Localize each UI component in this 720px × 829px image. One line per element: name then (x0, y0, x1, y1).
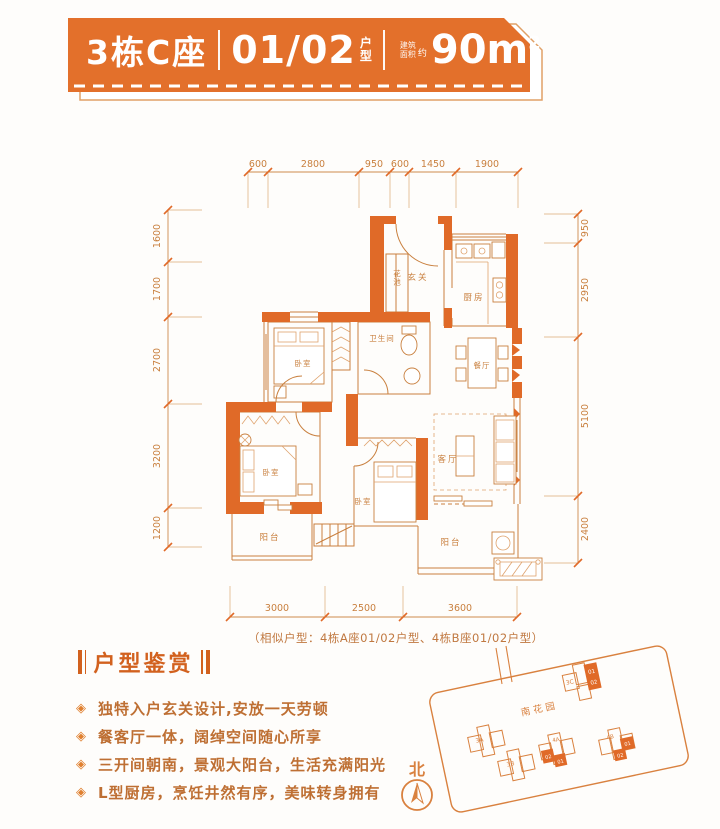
dim-label: 2700 (152, 348, 163, 372)
site-boundary (428, 644, 690, 814)
area-prefix: 建筑 面积 约 (396, 41, 427, 59)
site-plan: 南花园 01 02 3C 3A 3B 02 01 4A (390, 642, 700, 827)
building-4b: 01 02 4B (597, 725, 637, 763)
dim-label: 1700 (152, 277, 163, 301)
room-label-living: 客厅 (437, 454, 458, 465)
feature-item: ◈ 三开间朝南，景观大阳台，生活充满阳光 (76, 750, 416, 778)
area-label-line1: 建筑 (400, 41, 416, 50)
dim-label: 2950 (580, 278, 591, 302)
room-label-dining: 餐厅 (474, 361, 491, 370)
area-value: 90m2 (431, 27, 541, 73)
dim-label: 3600 (448, 603, 472, 614)
heading-bar (85, 650, 87, 674)
building-4b-label: 4B (606, 734, 615, 741)
building-3c-label: 3C (565, 678, 574, 687)
dim-label: 2800 (301, 159, 325, 170)
area-prefix-stack: 建筑 面积 (400, 41, 416, 59)
compass-needle-filled (411, 783, 417, 803)
diamond-bullet-icon: ◈ (76, 701, 98, 716)
room-label-entry: 玄关 (407, 272, 428, 283)
dim-label: 3200 (152, 444, 163, 468)
unit-label-line2: 型 (360, 50, 372, 63)
room-label-bathroom: 卫生间 (369, 333, 395, 343)
garden-label: 南花园 (520, 699, 559, 719)
feature-text: 三开间朝南，景观大阳台，生活充满阳光 (98, 754, 386, 775)
dim-label: 1600 (152, 224, 163, 248)
building-4a: 02 01 4A (537, 730, 577, 769)
banner-title: 3栋C座 01/02 户 型 建筑 面积 约 90m2 (64, 12, 556, 88)
area-superscript: 2 (528, 33, 541, 54)
dimension-top: 600 2800 950 600 1450 1900 (244, 159, 522, 208)
feature-item: ◈ 餐客厅一体，阔绰空间随心所享 (76, 722, 416, 750)
dimension-right: 950 2950 5100 2400 (544, 210, 591, 567)
dim-label: 5100 (580, 404, 591, 428)
area-number: 90m (431, 27, 528, 73)
features-heading: 户型鉴赏 (76, 646, 416, 678)
unit-label: 户 型 (360, 37, 372, 63)
room-label-kitchen: 厨房 (463, 292, 484, 303)
north-label: 北 (409, 760, 425, 779)
north-compass: 北 (402, 760, 432, 810)
building-3a-label: 3A (475, 736, 485, 745)
dim-label: 2500 (352, 603, 376, 614)
divider-bar (218, 30, 220, 70)
area-label-line2: 面积 (400, 50, 416, 59)
room-label-bedroom-small: 卧室 (355, 496, 372, 506)
dimension-bottom: 3000 2500 3600 (226, 586, 521, 621)
feature-item: ◈ L型厨房，烹饪井然有序，美味转身拥有 (76, 778, 416, 806)
dim-label: 2400 (580, 517, 591, 541)
room-label-bedroom-left: 卧室 (263, 467, 280, 477)
features-title: 户型鉴赏 (94, 646, 194, 678)
building-3b: 3B (496, 746, 536, 783)
area-approx: 约 (418, 49, 427, 59)
dim-label: 950 (580, 219, 591, 237)
dim-label: 600 (249, 159, 267, 170)
building-3c: 01 02 3C (561, 660, 604, 703)
unit-number: 01/02 (231, 28, 356, 72)
diamond-bullet-icon: ◈ (76, 729, 98, 744)
room-label-bedroom-mid: 卧室 (295, 358, 312, 368)
feature-text: L型厨房，烹饪井然有序，美味转身拥有 (98, 782, 381, 803)
diamond-bullet-icon: ◈ (76, 785, 98, 800)
dim-label: 1900 (475, 159, 499, 170)
features-section: 户型鉴赏 ◈ 独特入户玄关设计,安放一天劳顿 ◈ 餐客厅一体，阔绰空间随心所享 … (76, 646, 416, 806)
heading-bar (201, 650, 203, 674)
feature-item: ◈ 独特入户玄关设计,安放一天劳顿 (76, 694, 416, 722)
room-label-balcony-left: 阳台 (259, 532, 280, 543)
feature-text: 餐客厅一体，阔绰空间随心所享 (98, 726, 322, 747)
building-3b-label: 3B (506, 760, 515, 768)
floor-plan: 600 2800 950 600 1450 1900 1600 1700 270… (150, 128, 630, 668)
dimension-left: 1600 1700 2700 3200 1200 (152, 206, 202, 551)
features-list: ◈ 独特入户玄关设计,安放一天劳顿 ◈ 餐客厅一体，阔绰空间随心所享 ◈ 三开间… (76, 694, 416, 806)
dim-label: 1450 (421, 159, 445, 170)
dim-label: 3000 (265, 603, 289, 614)
divider-bar (383, 30, 385, 70)
room-label-planter: 花池 (392, 268, 401, 286)
heading-bar (206, 650, 210, 674)
title-banner: 3栋C座 01/02 户 型 建筑 面积 约 90m2 (64, 10, 564, 110)
room-label-balcony-right: 阳台 (440, 537, 461, 548)
heading-bar (78, 650, 82, 674)
dim-label: 1200 (152, 516, 163, 540)
diamond-bullet-icon: ◈ (76, 757, 98, 772)
dim-label: 950 (365, 159, 383, 170)
building-3a: 3A (466, 722, 506, 759)
building-4a-label: 4A (552, 737, 561, 744)
furniture (239, 242, 542, 580)
compass-needle-outline (417, 783, 423, 803)
building-name: 3栋C座 (86, 26, 207, 74)
dim-label: 600 (391, 159, 409, 170)
feature-text: 独特入户玄关设计,安放一天劳顿 (98, 698, 329, 719)
